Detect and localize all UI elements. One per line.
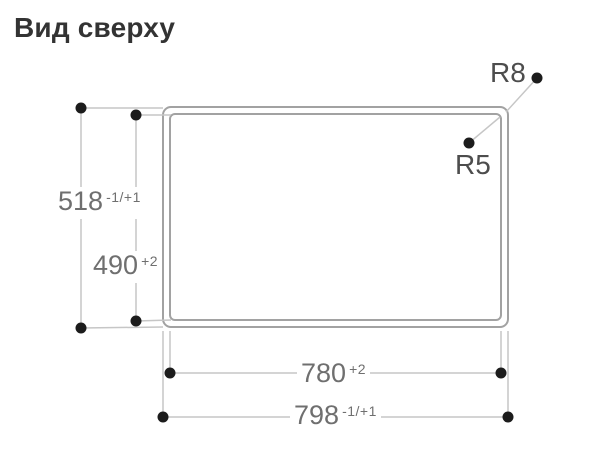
dim-marker-dot bbox=[76, 103, 87, 114]
dim-label-780: 780+2 bbox=[297, 359, 370, 391]
dim-marker-dot bbox=[76, 323, 87, 334]
radius-marker-dot-r5 bbox=[464, 138, 475, 149]
dim-label-798: 798-1/+1 bbox=[290, 401, 381, 433]
dim-marker-dot bbox=[131, 316, 142, 327]
dim-marker-dot bbox=[496, 368, 507, 379]
dim-tolerance: +2 bbox=[141, 253, 158, 269]
ext-line-518-bottom bbox=[81, 327, 163, 328]
dim-tolerance: -1/+1 bbox=[342, 403, 377, 419]
radius-label-r5: R5 bbox=[455, 151, 491, 179]
dim-marker-dot bbox=[131, 110, 142, 121]
dim-marker-dot bbox=[503, 412, 514, 423]
dim-value: 490 bbox=[93, 250, 138, 280]
dim-value: 798 bbox=[294, 400, 339, 430]
radius-marker-dot-r8 bbox=[532, 73, 543, 84]
dim-label-518: 518-1/+1 bbox=[54, 187, 145, 219]
dim-tolerance: +2 bbox=[349, 361, 366, 377]
dim-tolerance: -1/+1 bbox=[106, 189, 141, 205]
top-view-diagram: Вид сверху bbox=[0, 0, 600, 453]
dim-label-490: 490+2 bbox=[89, 251, 162, 283]
cutout-inner-rect bbox=[170, 114, 501, 320]
dim-marker-dot bbox=[158, 412, 169, 423]
dim-marker-dot bbox=[165, 368, 176, 379]
dim-value: 518 bbox=[58, 186, 103, 216]
cutout-outer-rect bbox=[163, 107, 508, 327]
dim-value: 780 bbox=[301, 358, 346, 388]
leader-line-r5 bbox=[469, 117, 500, 143]
radius-label-r8: R8 bbox=[490, 59, 526, 87]
